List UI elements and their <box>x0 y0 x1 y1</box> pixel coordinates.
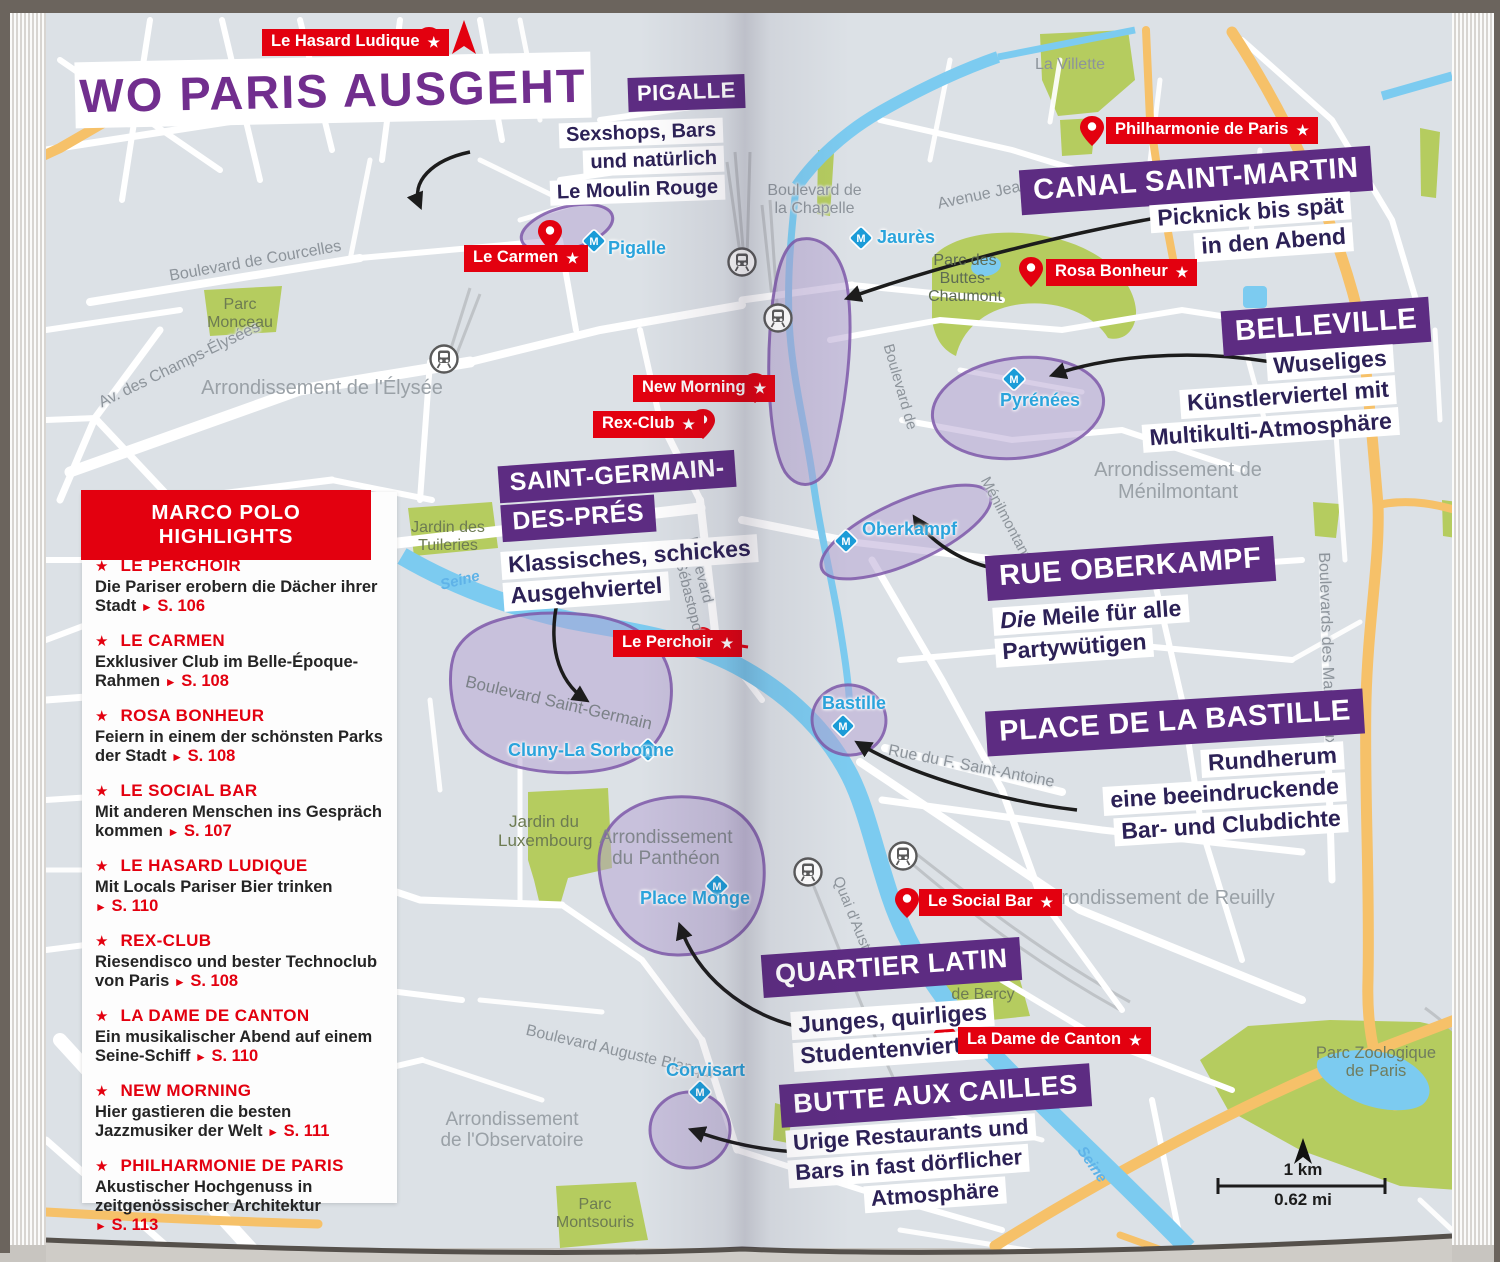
metro-station-label: Jaurès <box>877 227 935 248</box>
park-label: ParcMontsouris <box>552 1196 638 1232</box>
star-icon: ★ <box>428 35 441 49</box>
metro-station-label: Oberkampf <box>862 519 957 540</box>
district-note-pigalle: Sexshops, Bars und natürlich Le Moulin R… <box>531 115 726 207</box>
arrow-icon: ► <box>195 1050 207 1064</box>
park-label: Parc desButtes-Chaumont <box>903 252 1027 306</box>
page-title: WO PARIS AUSGEHT <box>79 57 587 123</box>
highlights-header: MARCO POLO HIGHLIGHTS <box>81 490 371 560</box>
list-item: ★ROSA BONHEUR Feiern in einem der schöns… <box>95 706 383 767</box>
park-label: ParcMonceau <box>200 296 280 332</box>
district-note-belleville: Wuseliges Künstlerviertel mit Multikulti… <box>1137 341 1399 453</box>
district-note-butte-aux-cailles: Urige Restaurants und Bars in fast dörfl… <box>785 1113 1007 1219</box>
park-label: La Villette <box>1030 56 1110 74</box>
metro-station-label: Pigalle <box>608 238 666 259</box>
star-icon: ★ <box>754 381 767 395</box>
arrow-icon: ► <box>95 1219 107 1233</box>
list-item: ★LE PERCHOIR Die Pariser erobern die Däc… <box>95 556 383 617</box>
arrow-icon: ► <box>165 675 177 689</box>
list-item: ★NEW MORNING Hier gastieren die besten J… <box>95 1081 383 1142</box>
page-title-box: WO PARIS AUSGEHT <box>74 52 591 129</box>
poi-label-le-perchoir: Le Perchoir★ <box>613 630 742 657</box>
metro-station-label: Place Monge <box>640 888 750 909</box>
metro-station-label: Cluny-La Sorbonne <box>508 740 674 761</box>
arrondissement-label: Arrondissement de l'Élysée <box>192 378 452 400</box>
metro-station-label: Corvisart <box>666 1060 745 1081</box>
district-area-butte-aux-cailles <box>650 1092 730 1168</box>
poi-label-le-hasard-ludique: Le Hasard Ludique★ <box>262 29 449 56</box>
metro-station-label: Bastille <box>822 693 886 714</box>
park-label: Parc Zoologiquede Paris <box>1312 1044 1440 1081</box>
poi-label-rosa-bonheur: Rosa Bonheur★ <box>1046 259 1197 286</box>
train-station-icon <box>729 249 756 276</box>
poi-label-le-carmen: Le Carmen★ <box>464 245 588 272</box>
guidebook-map-spread: M <box>0 0 1500 1262</box>
star-icon: ★ <box>1176 265 1189 279</box>
poi-label-new-morning: New Morning★ <box>633 375 775 402</box>
train-station-icon <box>765 305 792 332</box>
train-station-icon <box>890 843 917 870</box>
star-icon: ★ <box>1041 895 1054 909</box>
book-cover-edge-left <box>0 13 10 1253</box>
arrow-icon: ► <box>141 600 153 614</box>
arrondissement-label: Arrondissementde l'Observatoire <box>422 1110 602 1151</box>
star-icon: ★ <box>721 636 734 650</box>
list-item: ★LE CARMEN Exklusiver Club im Belle-Époq… <box>95 631 383 692</box>
arrondissement-label: Arrondissementdu Panthéon <box>586 828 746 869</box>
train-station-icon <box>431 346 458 373</box>
page-stack-right <box>1452 13 1494 1245</box>
arrow-icon: ► <box>95 900 107 914</box>
district-label-pigalle: PIGALLE <box>627 74 745 112</box>
poi-label-rex-club: Rex-Club★ <box>593 411 704 438</box>
poi-label-le-social-bar: Le Social Bar★ <box>919 889 1062 916</box>
district-area-canal-saint-martin <box>769 239 850 485</box>
poi-label-philharmonie-de-paris: Philharmonie de Paris★ <box>1106 117 1318 144</box>
star-icon: ★ <box>95 1007 108 1025</box>
highlights-list: ★LE PERCHOIR Die Pariser erobern die Däc… <box>95 556 383 1250</box>
star-icon: ★ <box>95 1082 108 1100</box>
book-cover-edge-right <box>1494 0 1500 1262</box>
park-label: Jardin duLuxembourg <box>498 812 590 850</box>
star-icon: ★ <box>566 251 579 265</box>
arrondissement-label: Arrondissement deMénilmontant <box>1078 460 1278 503</box>
metro-icon <box>849 226 873 250</box>
star-icon: ★ <box>95 857 108 875</box>
train-station-icon <box>795 859 822 886</box>
park-label: Jardin desTuileries <box>407 519 489 555</box>
page-stack-left <box>10 13 46 1245</box>
star-icon: ★ <box>95 707 108 725</box>
star-icon: ★ <box>95 932 108 950</box>
poi-label-la-dame-de-canton: La Dame de Canton★ <box>958 1027 1151 1054</box>
nav-arrow-icon <box>452 20 476 54</box>
list-item: ★LE HASARD LUDIQUE Mit Locals Pariser Bi… <box>95 856 383 917</box>
star-icon: ★ <box>95 782 108 800</box>
star-icon: ★ <box>95 1157 108 1175</box>
scale-mi-label: 0.62 mi <box>1260 1190 1346 1210</box>
district-note-place-de-la-bastille: Rundherum eine beeindruckende Bar- und C… <box>1087 738 1348 848</box>
list-item: ★REX-CLUB Riesendisco und bester Technoc… <box>95 931 383 992</box>
district-label-saint-germain: SAINT-GERMAIN- DES-PRÉS <box>498 450 740 544</box>
star-icon: ★ <box>1129 1033 1142 1047</box>
star-icon: ★ <box>95 632 108 650</box>
arrow-icon: ► <box>267 1125 279 1139</box>
arrow-icon: ► <box>167 825 179 839</box>
metro-station-label: Pyrénées <box>1000 390 1080 411</box>
scale-km-label: 1 km <box>1268 1160 1338 1180</box>
arrow-icon: ► <box>174 975 186 989</box>
book-cover-edge-top <box>0 0 1500 13</box>
list-item: ★LE SOCIAL BAR Mit anderen Menschen ins … <box>95 781 383 842</box>
star-icon: ★ <box>95 557 108 575</box>
star-icon: ★ <box>682 417 695 431</box>
arrondissement-label: Arrondissement de Reuilly <box>1038 888 1278 910</box>
star-icon: ★ <box>1296 123 1309 137</box>
list-item: ★PHILHARMONIE DE PARIS Akustischer Hochg… <box>95 1156 383 1236</box>
street-label: Boulevard dela Chapelle <box>762 182 867 218</box>
list-item: ★LA DAME DE CANTON Ein musikalischer Abe… <box>95 1006 383 1067</box>
arrow-icon: ► <box>171 750 183 764</box>
